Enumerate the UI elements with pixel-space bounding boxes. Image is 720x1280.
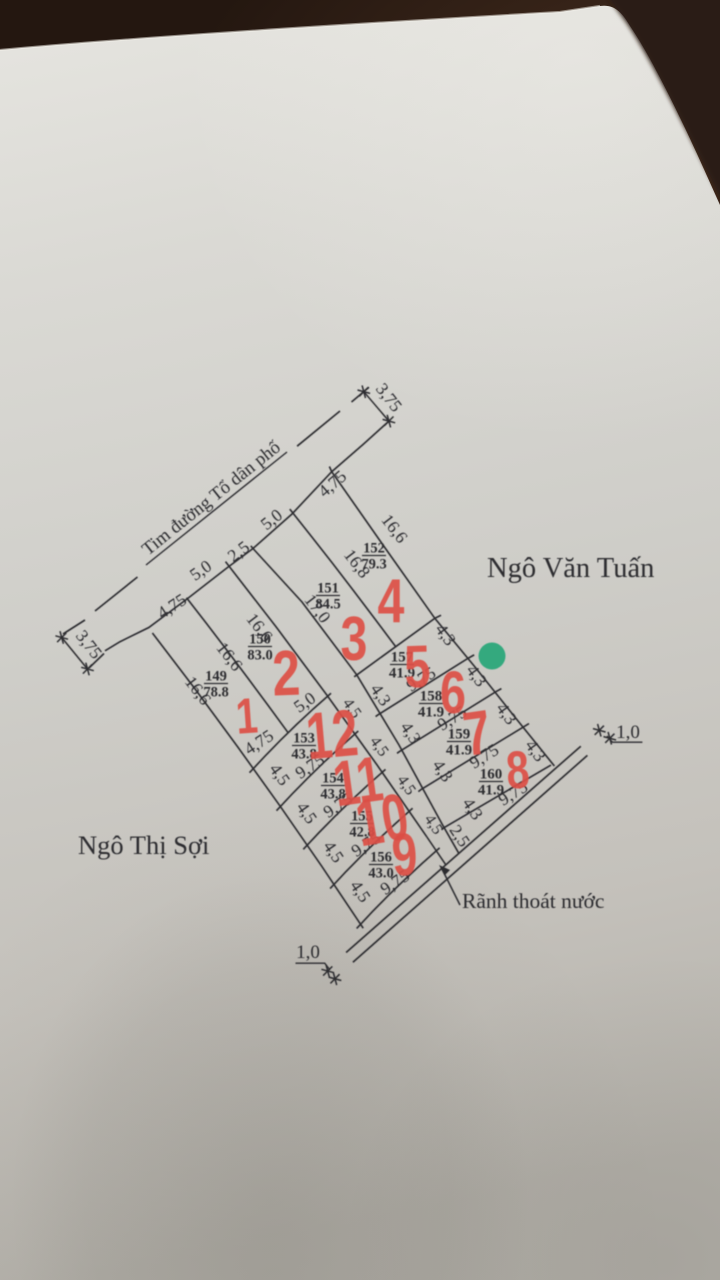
svg-text:12: 12 [303, 696, 361, 774]
svg-text:5: 5 [403, 633, 431, 701]
svg-text:41.9: 41.9 [478, 783, 504, 799]
svg-text:152: 152 [363, 541, 385, 557]
svg-text:1,0: 1,0 [616, 722, 640, 743]
svg-text:2: 2 [271, 638, 301, 710]
svg-text:151: 151 [317, 581, 339, 597]
svg-text:43.0: 43.0 [368, 866, 393, 882]
svg-text:160: 160 [480, 767, 503, 783]
svg-text:8: 8 [504, 740, 531, 801]
svg-text:1,0: 1,0 [296, 942, 320, 963]
svg-text:4: 4 [378, 566, 405, 635]
svg-text:149: 149 [205, 669, 227, 685]
svg-text:Rãnh thoát nước: Rãnh thoát nước [462, 889, 604, 913]
svg-text:1: 1 [234, 687, 260, 745]
svg-text:83.0: 83.0 [247, 648, 272, 664]
svg-text:Ngô Văn Tuấn: Ngô Văn Tuấn [487, 553, 654, 584]
svg-text:150: 150 [249, 632, 271, 648]
svg-text:Ngô Thị Sợi: Ngô Thị Sợi [78, 830, 209, 860]
svg-text:78.8: 78.8 [203, 685, 228, 701]
svg-text:84.5: 84.5 [315, 597, 340, 613]
svg-text:3: 3 [341, 604, 368, 673]
